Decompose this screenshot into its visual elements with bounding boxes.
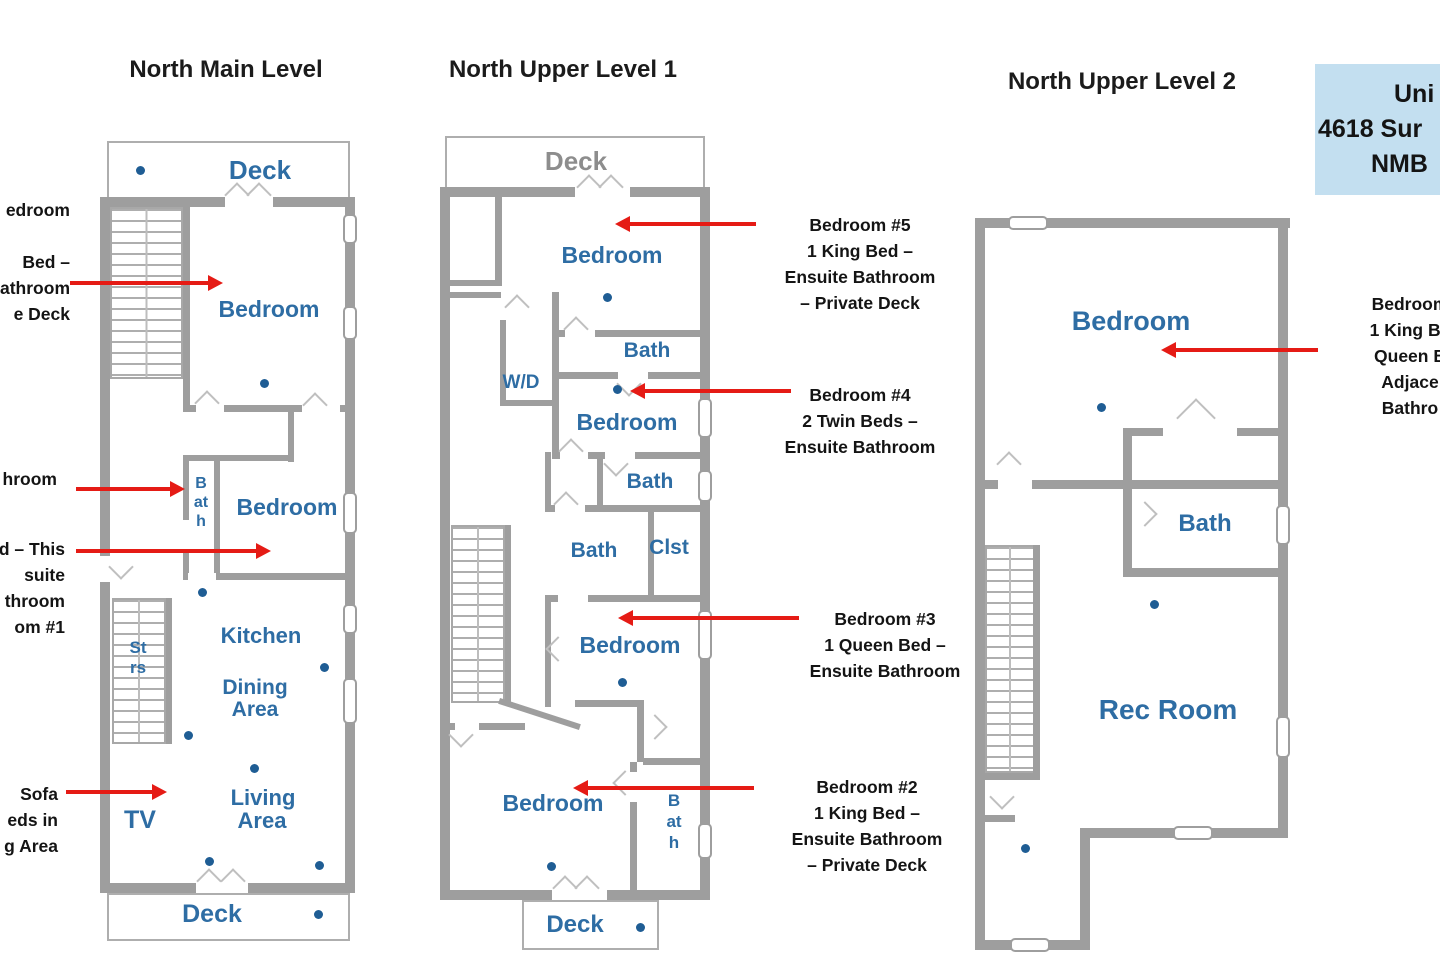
- callout-left-bedroom1: d – This suite throom om #1: [0, 536, 65, 640]
- room-label-deck: Deck: [546, 911, 603, 939]
- wall-segment: [1237, 428, 1278, 436]
- room-label-dining-area: Area: [232, 698, 279, 722]
- door-swing-marker: [553, 491, 578, 516]
- callout-line: [0, 223, 70, 249]
- fixture-dot: [1021, 844, 1030, 853]
- door-swing-marker: [108, 554, 133, 579]
- wall-segment: [597, 459, 603, 509]
- callout-line: edroom: [0, 197, 70, 223]
- window-marker: [698, 398, 712, 438]
- callout-left-bedroom: edroom Bed – athroom e Deck: [0, 197, 70, 327]
- callout-bedroom3: Bedroom #3 1 Queen Bed – Ensuite Bathroo…: [777, 606, 993, 684]
- fixture-dot: [613, 385, 622, 394]
- wall-segment: [1123, 489, 1132, 575]
- door-opening: [998, 480, 1032, 489]
- door-swing-marker: [558, 438, 583, 463]
- room-label-bedroom: Bedroom: [577, 409, 678, 436]
- window-marker: [1276, 716, 1290, 758]
- wall-segment: [1033, 545, 1040, 773]
- wall-segment: [985, 773, 1040, 780]
- window-marker: [1173, 826, 1213, 840]
- wall-segment: [100, 197, 110, 893]
- room-label-washer-dryer: W/D: [503, 372, 540, 394]
- callout-line: Queen B: [1345, 343, 1440, 369]
- callout-arrow-bedroom1: [76, 549, 258, 553]
- wall-segment: [975, 218, 985, 950]
- fixture-dot: [1097, 403, 1106, 412]
- plan-title-main-level: North Main Level: [129, 56, 322, 84]
- room-label-bedroom: Bedroom: [562, 242, 663, 269]
- room-label-living-area: Area: [238, 808, 287, 834]
- wall-segment: [552, 379, 559, 455]
- room-label-bedroom: Bedroom: [237, 494, 338, 521]
- wall-segment: [700, 187, 710, 900]
- fixture-dot: [1150, 600, 1159, 609]
- room-label-bedroom: Bedroom: [219, 296, 320, 323]
- callout-line: e Deck: [0, 301, 70, 327]
- callout-arrow-bedroom5: [628, 222, 756, 226]
- door-opening: [183, 520, 189, 550]
- callout-arrow-bedroom3: [631, 616, 799, 620]
- callout-line: 1 King Be: [1345, 317, 1440, 343]
- window-marker: [1008, 216, 1048, 230]
- room-label-bedroom: Bedroom: [580, 632, 681, 659]
- room-label-rec-room: Rec Room: [1099, 694, 1237, 726]
- room-label-bath: Bath: [664, 790, 684, 853]
- door-swing-marker: [302, 392, 327, 417]
- room-label-dining-area: Dining: [222, 676, 287, 700]
- wall-segment: [214, 455, 220, 579]
- callout-line: Ensuite Bathroom: [752, 264, 968, 290]
- callout-line: Bathro: [1345, 395, 1440, 421]
- door-opening: [100, 556, 110, 582]
- callout-bedroom2: Bedroom #2 1 King Bed – Ensuite Bathroom…: [759, 774, 975, 878]
- staircase: [451, 525, 505, 703]
- callout-arrow-sofa: [66, 790, 154, 794]
- door-swing-marker: [1132, 501, 1157, 526]
- address-line: 4618 Sur: [1318, 115, 1422, 144]
- wall-segment: [449, 292, 501, 298]
- window-marker: [1010, 938, 1050, 952]
- wall-segment: [643, 758, 708, 765]
- window-marker: [343, 306, 357, 340]
- door-swing-marker: [996, 451, 1021, 476]
- callout-line: suite: [0, 562, 65, 588]
- callout-line: 1 Queen Bed –: [777, 632, 993, 658]
- callout-line: om #1: [0, 614, 65, 640]
- address-line: NMB: [1371, 150, 1428, 179]
- fixture-dot: [315, 861, 324, 870]
- callout-line: 1 King Bed –: [759, 800, 975, 826]
- floorplan-canvas: North Main Level North Upper Level 1 Nor…: [0, 0, 1440, 960]
- wall-segment: [500, 400, 558, 406]
- room-label-bedroom: Bedroom: [503, 790, 604, 817]
- room-label-kitchen: Kitchen: [221, 623, 302, 649]
- fixture-dot: [603, 293, 612, 302]
- room-label-bath: Bath: [627, 470, 674, 494]
- fixture-dot: [547, 862, 556, 871]
- window-marker: [343, 678, 357, 724]
- room-label-closet: Clst: [649, 536, 689, 560]
- callout-line: Bedroom: [1345, 291, 1440, 317]
- callout-line: Adjace: [1345, 369, 1440, 395]
- fixture-dot: [260, 379, 269, 388]
- callout-line: Bedroom #2: [759, 774, 975, 800]
- callout-line: Ensuite Bathroom: [759, 826, 975, 852]
- room-label-deck: Deck: [545, 146, 607, 177]
- callout-line: eds in: [0, 807, 58, 833]
- callout-arrow-bedroom2: [586, 786, 754, 790]
- room-label-deck: Deck: [182, 900, 242, 929]
- callout-line: hroom: [0, 466, 57, 492]
- door-swing-marker: [989, 784, 1014, 809]
- room-label-stairs: Strs: [128, 638, 148, 678]
- wall-segment: [985, 815, 1015, 822]
- door-swing-marker: [642, 714, 667, 739]
- wall-segment: [495, 197, 502, 285]
- door-swing-marker: [504, 294, 529, 319]
- callout-line: athroom: [0, 275, 70, 301]
- room-label-bath: Bath: [1178, 510, 1231, 538]
- callout-line: d – This: [0, 536, 65, 562]
- fixture-dot: [198, 588, 207, 597]
- window-marker: [343, 604, 357, 634]
- callout-arrow-bath: [76, 487, 172, 491]
- door-swing-marker: [1176, 398, 1216, 438]
- wall-segment: [637, 700, 644, 762]
- door-opening: [188, 573, 216, 580]
- wall-segment: [505, 525, 511, 703]
- callout-line: 1 King Bed –: [752, 238, 968, 264]
- wall-segment: [183, 207, 190, 410]
- callout-line: Bedroom #5: [752, 212, 968, 238]
- fixture-dot: [205, 857, 214, 866]
- callout-line: Sofa: [0, 781, 58, 807]
- window-marker: [698, 823, 712, 859]
- wall-segment: [166, 598, 172, 744]
- callout-arrow-bedroom6: [70, 281, 210, 285]
- room-label-bedroom: Bedroom: [1072, 306, 1191, 337]
- callout-line: Bedroom #4: [752, 382, 968, 408]
- callout-line: – Private Deck: [759, 852, 975, 878]
- door-opening: [558, 595, 588, 602]
- wall-segment: [345, 197, 355, 893]
- room-label-bath: Bath: [191, 474, 211, 531]
- wall-segment: [1080, 828, 1090, 950]
- window-marker: [1276, 505, 1290, 545]
- fixture-dot: [320, 663, 329, 672]
- callout-line: g Area: [0, 833, 58, 859]
- window-marker: [698, 470, 712, 502]
- fixture-dot: [314, 910, 323, 919]
- wall-segment: [183, 455, 294, 461]
- callout-bedroom4: Bedroom #4 2 Twin Beds – Ensuite Bathroo…: [752, 382, 968, 460]
- door-swing-marker: [563, 316, 588, 341]
- callout-left-bath: hroom: [0, 466, 57, 492]
- fixture-dot: [136, 166, 145, 175]
- callout-line: Ensuite Bathroom: [752, 434, 968, 460]
- fixture-dot: [184, 731, 193, 740]
- callout-arrow-right-bedroom: [1174, 348, 1318, 352]
- wall-segment: [1123, 428, 1132, 488]
- wall-segment: [449, 280, 502, 286]
- wall-segment: [545, 452, 551, 512]
- fixture-dot: [618, 678, 627, 687]
- room-label-bath: Bath: [624, 339, 671, 363]
- callout-right-bedroom: Bedroom 1 King Be Queen B Adjace Bathro: [1345, 291, 1440, 421]
- staircase: [110, 207, 183, 379]
- callout-line: 2 Twin Beds –: [752, 408, 968, 434]
- window-marker: [343, 492, 357, 534]
- fixture-dot: [250, 764, 259, 773]
- callout-line: – Private Deck: [752, 290, 968, 316]
- window-marker: [343, 214, 357, 244]
- plan-title-upper-level-2: North Upper Level 2: [1008, 68, 1236, 96]
- callout-bedroom5: Bedroom #5 1 King Bed – Ensuite Bathroom…: [752, 212, 968, 316]
- address-line: Uni: [1394, 80, 1434, 109]
- callout-line: throom: [0, 588, 65, 614]
- callout-line: Ensuite Bathroom: [777, 658, 993, 684]
- wall-segment: [1123, 568, 1287, 577]
- plan-title-upper-level-1: North Upper Level 1: [449, 56, 677, 84]
- callout-left-sofa: Sofa eds in g Area: [0, 781, 58, 859]
- room-label-deck: Deck: [229, 155, 291, 186]
- callout-line: Bed –: [0, 249, 70, 275]
- wall-segment: [575, 700, 643, 707]
- room-label-tv: TV: [124, 806, 156, 835]
- callout-line: Bedroom #3: [777, 606, 993, 632]
- room-label-bath: Bath: [571, 539, 618, 563]
- fixture-dot: [636, 923, 645, 932]
